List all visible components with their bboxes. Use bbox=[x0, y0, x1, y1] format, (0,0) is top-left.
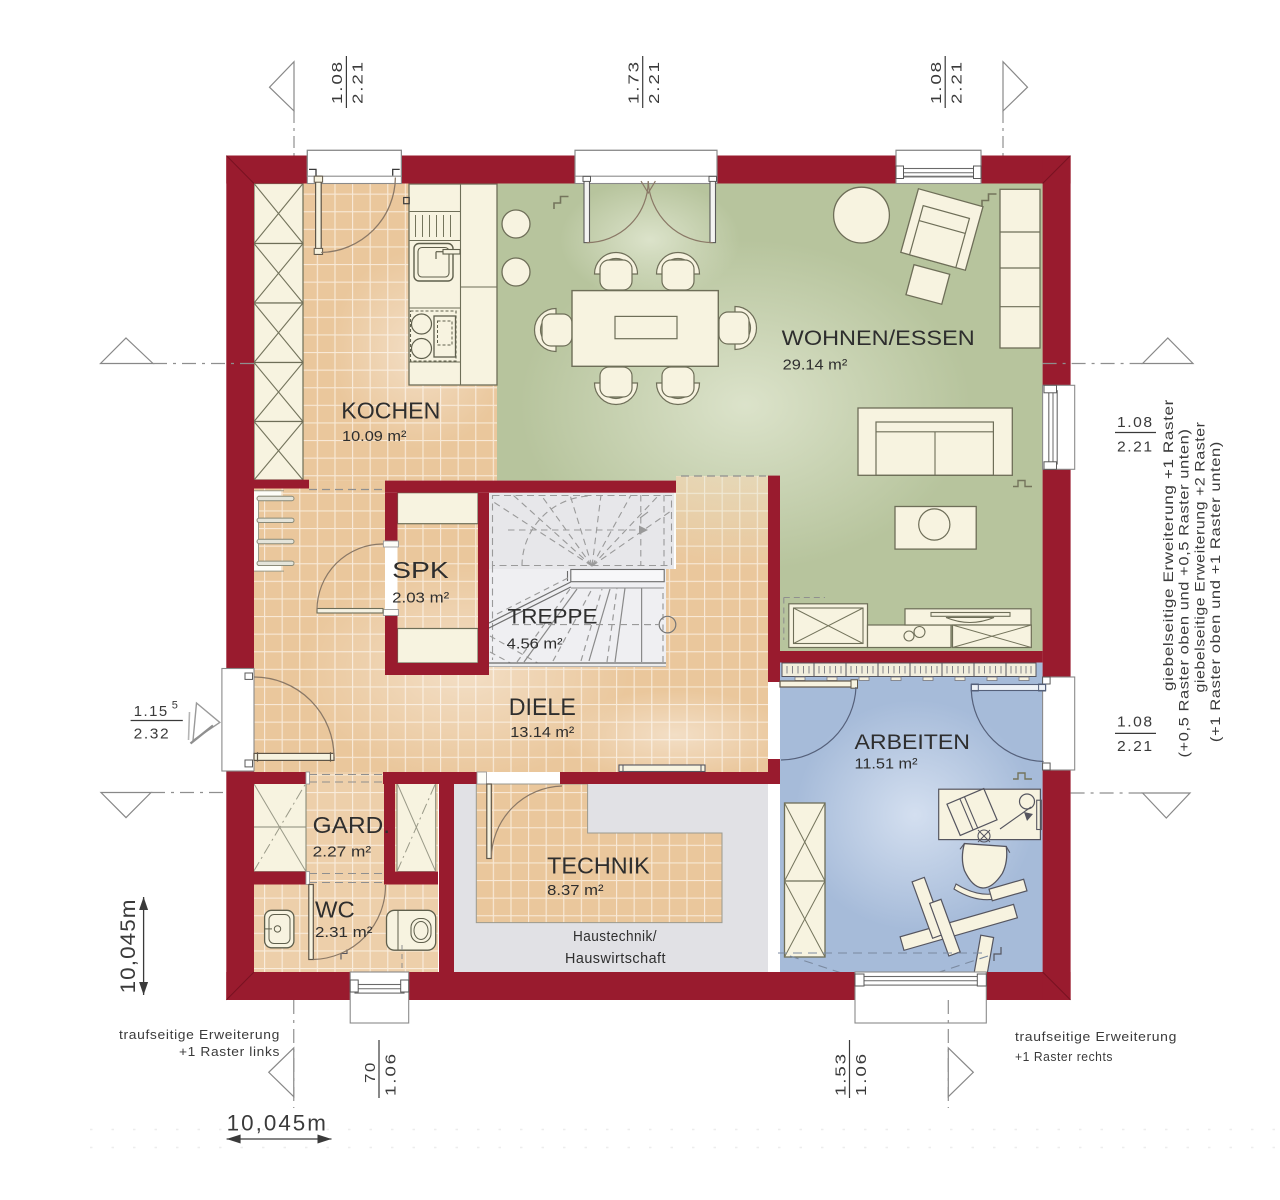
svg-text:70: 70 bbox=[362, 1061, 379, 1083]
svg-text:(+1 Raster oben und +1 Raster: (+1 Raster oben und +1 Raster unten) bbox=[1207, 441, 1223, 742]
svg-text:11.51 m²: 11.51 m² bbox=[855, 756, 918, 773]
svg-text:ARBEITEN: ARBEITEN bbox=[855, 730, 971, 754]
svg-text:10.09 m²: 10.09 m² bbox=[342, 428, 407, 445]
svg-text:WOHNEN/ESSEN: WOHNEN/ESSEN bbox=[782, 326, 975, 350]
svg-text:traufseitige Erweiterung: traufseitige Erweiterung bbox=[1015, 1029, 1177, 1044]
svg-text:29.14 m²: 29.14 m² bbox=[783, 357, 848, 374]
svg-text:1.08: 1.08 bbox=[1117, 414, 1154, 431]
svg-text:1.08: 1.08 bbox=[329, 60, 346, 104]
svg-text:2.21: 2.21 bbox=[646, 60, 663, 104]
svg-text:1.08: 1.08 bbox=[928, 60, 945, 104]
svg-text:KOCHEN: KOCHEN bbox=[341, 398, 440, 424]
svg-text:8.37 m²: 8.37 m² bbox=[547, 882, 603, 899]
svg-text:Hauswirtschaft: Hauswirtschaft bbox=[565, 950, 666, 967]
svg-text:4.56 m²: 4.56 m² bbox=[507, 635, 563, 652]
svg-text:SPK: SPK bbox=[392, 557, 449, 583]
svg-text:2.21: 2.21 bbox=[948, 60, 965, 104]
svg-text:(+0,5 Raster oben und +0,5 Ras: (+0,5 Raster oben und +0,5 Raster unten) bbox=[1176, 429, 1192, 758]
svg-text:1.06: 1.06 bbox=[383, 1052, 400, 1096]
svg-text:1.15: 1.15 bbox=[134, 703, 169, 720]
svg-text:TECHNIK: TECHNIK bbox=[547, 853, 650, 879]
svg-text:traufseitige Erweiterung: traufseitige Erweiterung bbox=[119, 1027, 280, 1042]
svg-text:2.31 m²: 2.31 m² bbox=[315, 924, 372, 941]
svg-text:giebelseitige Erweiterung +1 R: giebelseitige Erweiterung +1 Raster bbox=[1160, 399, 1176, 691]
svg-text:10,045m: 10,045m bbox=[117, 898, 140, 993]
svg-text:DIELE: DIELE bbox=[509, 694, 576, 721]
svg-text:+1 Raster rechts: +1 Raster rechts bbox=[1015, 1049, 1113, 1064]
svg-text:+1 Raster links: +1 Raster links bbox=[179, 1044, 280, 1059]
svg-text:2.21: 2.21 bbox=[1117, 439, 1154, 456]
svg-text:5: 5 bbox=[172, 700, 178, 712]
svg-text:giebelseitige Erweiterung +2 R: giebelseitige Erweiterung +2 Raster bbox=[1191, 422, 1207, 693]
svg-text:1.53: 1.53 bbox=[833, 1052, 850, 1096]
svg-text:2.21: 2.21 bbox=[350, 60, 367, 104]
svg-text:2.27 m²: 2.27 m² bbox=[313, 843, 372, 860]
svg-text:Haustechnik/: Haustechnik/ bbox=[573, 928, 657, 945]
svg-text:2.32: 2.32 bbox=[134, 726, 171, 743]
svg-text:TREPPE: TREPPE bbox=[508, 604, 598, 628]
svg-text:WC: WC bbox=[315, 896, 355, 922]
svg-text:1.06: 1.06 bbox=[853, 1052, 870, 1096]
svg-text:1.08: 1.08 bbox=[1117, 713, 1154, 730]
svg-text:10,045m: 10,045m bbox=[227, 1110, 328, 1135]
svg-text:GARD.: GARD. bbox=[313, 812, 390, 838]
svg-text:2.21: 2.21 bbox=[1117, 738, 1154, 755]
svg-text:2.03 m²: 2.03 m² bbox=[392, 590, 449, 607]
svg-text:1.73: 1.73 bbox=[625, 60, 642, 104]
svg-text:13.14 m²: 13.14 m² bbox=[510, 724, 574, 741]
